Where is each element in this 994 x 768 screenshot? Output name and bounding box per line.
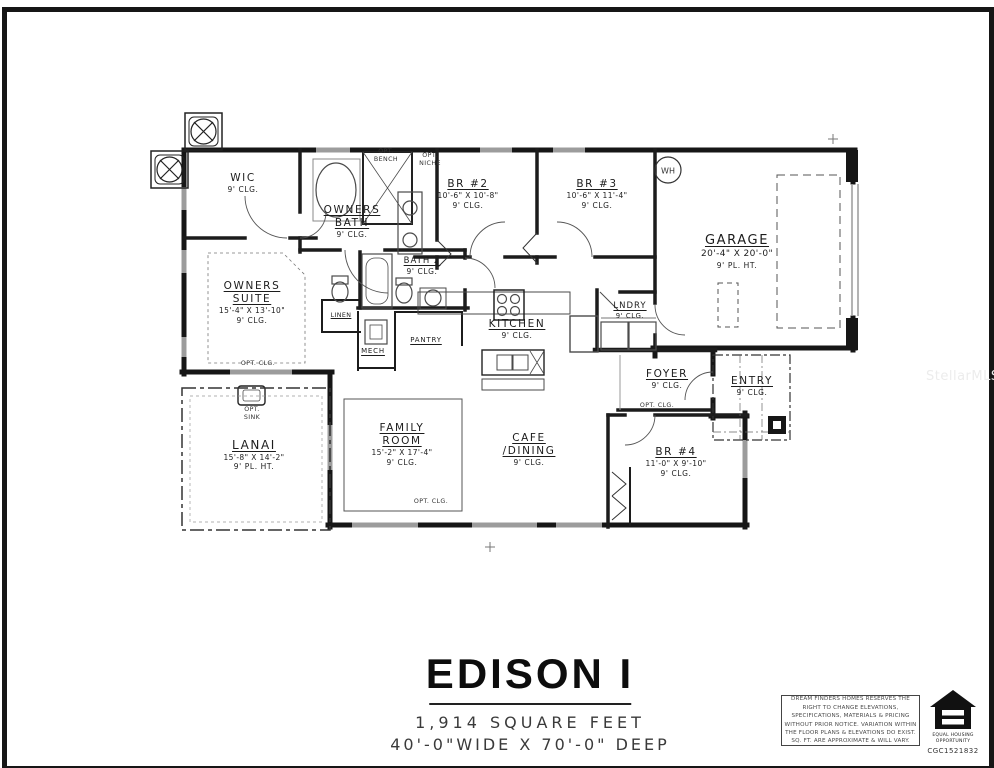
room-label-cafe-dining: CAFE /DINING 9' CLG. xyxy=(503,432,556,468)
room-clg: 9' CLG. xyxy=(219,316,285,325)
annotation-opt-bench: OPT. BENCH xyxy=(374,148,398,164)
equal-housing-icon xyxy=(930,690,976,732)
room-label-br2: BR #2 10'-6" X 10'-8" 9' CLG. xyxy=(438,178,499,210)
annotation-opt-sink: OPT. SINK xyxy=(244,406,260,422)
room-name: FAMILY xyxy=(372,422,433,435)
closet-doors xyxy=(437,233,626,520)
floorplan-page: WH xyxy=(0,0,994,768)
room-name: CAFE xyxy=(503,432,556,445)
disclaimer-box: DREAM FINDERS HOMES RESERVES THE RIGHT T… xyxy=(781,695,920,746)
room-clg: 9' CLG. xyxy=(372,458,433,467)
watermark: StellarMLS xyxy=(926,369,994,384)
annotation-opt-clg-family: OPT. CLG. xyxy=(414,498,448,506)
room-label-bath2: BATH 2 9' CLG. xyxy=(404,256,441,276)
room-label-linen: LINEN xyxy=(331,312,352,320)
plan-title: EDISON I xyxy=(390,650,670,698)
room-name: OWNERS xyxy=(219,280,285,293)
room-label-wic: WIC 9' CLG. xyxy=(227,172,258,195)
room-label-owners-suite: OWNERS SUITE 15'-4" X 13'-10" 9' CLG. xyxy=(219,280,285,325)
room-clg: 9' CLG. xyxy=(646,381,688,390)
room-clg: 9' CLG. xyxy=(324,230,381,239)
room-label-pantry: PANTRY xyxy=(410,336,442,345)
room-name: MECH xyxy=(361,347,385,356)
room-name: BATH 2 xyxy=(404,256,441,267)
room-clg: 9' CLG. xyxy=(404,267,441,276)
annotation-opt-clg-foyer: OPT. CLG. xyxy=(640,402,674,410)
room-name: BR #4 xyxy=(646,446,707,459)
room-clg: 9' CLG. xyxy=(567,201,628,210)
room-name: GARAGE xyxy=(701,233,773,249)
room-name: BR #2 xyxy=(438,178,499,191)
title-block: EDISON I 1,914 SQUARE FEET 40'-0"WIDE X … xyxy=(390,650,670,754)
room-name: WIC xyxy=(227,172,258,185)
room-name: LINEN xyxy=(331,312,352,320)
entry-column xyxy=(768,416,786,434)
room-dims: 11'-0" X 9'-10" xyxy=(646,459,707,468)
room-dims: 20'-4" X 20'-0" xyxy=(701,249,773,260)
room-name: OWNERS xyxy=(324,204,381,217)
room-clg: 9' CLG. xyxy=(227,185,258,194)
room-clg: 9' CLG. xyxy=(438,201,499,210)
room-dims: 15'-2" X 17'-4" xyxy=(372,448,433,457)
room-clg: 9' CLG. xyxy=(731,388,773,397)
dashed-outlines xyxy=(182,175,840,530)
room-clg: 9' PL. HT. xyxy=(701,261,773,270)
plan-dimensions: 40'-0"WIDE X 70'-0" DEEP xyxy=(390,735,670,754)
room-name: /DINING xyxy=(503,445,556,458)
equal-housing-block: EQUAL HOUSING OPPORTUNITY CGC1521832 xyxy=(927,690,979,755)
room-name: ENTRY xyxy=(731,375,773,388)
room-clg: 9' CLG. xyxy=(613,312,646,320)
room-label-kitchen: KITCHEN 9' CLG. xyxy=(489,318,546,341)
room-label-owners-bath: OWNERS BATH 9' CLG. xyxy=(324,204,381,240)
room-name: KITCHEN xyxy=(489,318,546,331)
room-clg: 9' CLG. xyxy=(489,331,546,340)
room-label-lanai: LANAI 15'-8" X 14'-2" 9' PL. HT. xyxy=(224,438,285,472)
room-name: ROOM xyxy=(372,435,433,448)
room-name: SUITE xyxy=(219,293,285,306)
room-dims: 15'-8" X 14'-2" xyxy=(224,453,285,462)
plan-square-feet: 1,914 SQUARE FEET xyxy=(390,713,670,732)
room-label-entry: ENTRY 9' CLG. xyxy=(731,375,773,398)
room-label-laundry: LNDRY 9' CLG. xyxy=(613,301,646,320)
equal-housing-text: EQUAL HOUSING OPPORTUNITY xyxy=(927,733,979,744)
room-name: FOYER xyxy=(646,368,688,381)
room-dims: 10'-6" X 11'-4" xyxy=(567,191,628,200)
room-label-family-room: FAMILY ROOM 15'-2" X 17'-4" 9' CLG. xyxy=(372,422,433,467)
room-name: LNDRY xyxy=(613,301,646,312)
room-label-garage: GARAGE 20'-4" X 20'-0" 9' PL. HT. xyxy=(701,233,773,270)
room-label-br3: BR #3 10'-6" X 11'-4" 9' CLG. xyxy=(567,178,628,210)
garage-door xyxy=(846,150,858,350)
room-clg: 9' CLG. xyxy=(503,458,556,467)
room-dims: 15'-4" X 13'-10" xyxy=(219,306,285,315)
room-label-foyer: FOYER 9' CLG. xyxy=(646,368,688,391)
room-label-br4: BR #4 11'-0" X 9'-10" 9' CLG. xyxy=(646,446,707,478)
room-name: BR #3 xyxy=(567,178,628,191)
water-heater-label: WH xyxy=(661,167,675,176)
disclaimer-text: DREAM FINDERS HOMES RESERVES THE RIGHT T… xyxy=(784,695,917,745)
license-number: CGC1521832 xyxy=(927,747,979,755)
annotation-opt-niche: OPT. NICHE xyxy=(419,152,441,168)
room-clg: 9' CLG. xyxy=(646,469,707,478)
room-name: BATH xyxy=(324,217,381,230)
room-dims: 10'-6" X 10'-8" xyxy=(438,191,499,200)
room-name: LANAI xyxy=(224,438,285,453)
room-name: PANTRY xyxy=(410,336,442,345)
title-underline xyxy=(429,703,631,705)
annotation-opt-clg-owners-suite: OPT. CLG. xyxy=(241,360,275,368)
room-label-mech: MECH xyxy=(361,347,385,356)
room-clg: 9' PL. HT. xyxy=(224,462,285,471)
